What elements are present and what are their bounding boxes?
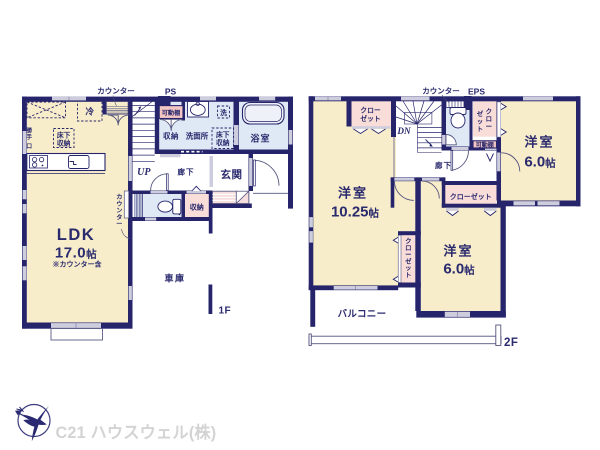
svg-text:ロ: ロ	[486, 115, 492, 123]
svg-text:冷: 冷	[86, 107, 95, 117]
svg-text:ク: ク	[486, 107, 492, 116]
svg-text:廊下: 廊下	[435, 160, 452, 170]
svg-text:ゼット: ゼット	[360, 114, 380, 123]
svg-text:床下: 床下	[216, 130, 230, 139]
svg-text:勝: 勝	[26, 127, 32, 135]
svg-text:EPS: EPS	[468, 87, 485, 97]
svg-text:PS: PS	[165, 87, 177, 97]
svg-text:クロー: クロー	[360, 106, 381, 115]
svg-text:可動棚: 可動棚	[162, 109, 181, 117]
svg-text:UP: UP	[137, 167, 151, 178]
svg-text:タ: タ	[116, 213, 122, 221]
svg-text:ー: ー	[116, 221, 122, 228]
svg-text:収納: 収納	[163, 131, 179, 141]
svg-text:洋室: 洋室	[524, 135, 554, 150]
svg-text:ウ: ウ	[116, 200, 122, 208]
svg-text:ロ: ロ	[405, 244, 411, 252]
svg-text:収納: 収納	[190, 203, 204, 212]
svg-text:2F: 2F	[504, 337, 518, 349]
svg-text:洗面所: 洗面所	[186, 130, 209, 140]
svg-text:1F: 1F	[218, 306, 231, 317]
svg-text:収納: 収納	[57, 139, 71, 148]
svg-text:ッ: ッ	[477, 119, 483, 126]
svg-text:床下: 床下	[57, 131, 71, 140]
svg-text:ト: ト	[405, 271, 411, 279]
svg-text:LDK: LDK	[57, 226, 95, 244]
svg-text:ゼ: ゼ	[405, 256, 412, 265]
svg-text:カウンター: カウンター	[97, 86, 135, 96]
svg-text:廊下: 廊下	[178, 167, 195, 177]
svg-text:ー: ー	[486, 124, 492, 131]
svg-text:車庫: 車庫	[164, 273, 185, 284]
svg-text:ト: ト	[477, 125, 483, 133]
svg-text:浴室: 浴室	[250, 133, 270, 144]
svg-text:収納: 収納	[216, 138, 230, 147]
svg-text:カウンター: カウンター	[422, 86, 460, 96]
svg-text:洋室: 洋室	[443, 244, 473, 259]
svg-text:ゼ: ゼ	[477, 109, 484, 118]
svg-text:※カウンター含: ※カウンター含	[53, 260, 103, 269]
svg-text:DN: DN	[396, 126, 411, 136]
svg-text:ク: ク	[405, 236, 411, 245]
svg-text:クローゼット: クローゼット	[450, 192, 492, 201]
svg-text:可動棚: 可動棚	[476, 141, 494, 149]
svg-text:手: 手	[26, 133, 32, 141]
svg-text:バルコニー: バルコニー	[338, 308, 387, 320]
svg-text:C21 ハウスウェル(株): C21 ハウスウェル(株)	[56, 423, 217, 442]
svg-text:洋室: 洋室	[338, 186, 368, 201]
svg-text:玄関: 玄関	[221, 168, 243, 181]
svg-text:口: 口	[26, 143, 32, 150]
svg-text:洗: 洗	[220, 108, 227, 117]
